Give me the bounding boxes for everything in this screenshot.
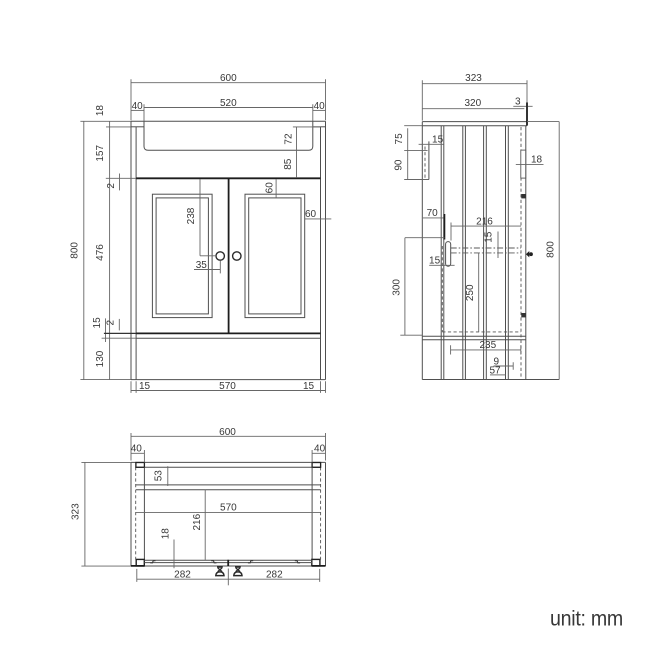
svg-text:2: 2 — [106, 183, 117, 189]
svg-text:250: 250 — [465, 284, 476, 301]
svg-text:53: 53 — [154, 470, 165, 482]
svg-text:323: 323 — [465, 73, 482, 84]
svg-text:235: 235 — [479, 340, 496, 351]
svg-text:35: 35 — [196, 260, 208, 271]
svg-text:600: 600 — [220, 73, 237, 84]
svg-text:130: 130 — [95, 350, 106, 367]
svg-text:800: 800 — [69, 242, 80, 259]
svg-text:216: 216 — [192, 513, 203, 530]
svg-text:40: 40 — [131, 443, 143, 454]
svg-text:40: 40 — [314, 101, 326, 112]
svg-text:238: 238 — [186, 207, 197, 224]
svg-text:282: 282 — [266, 570, 283, 581]
svg-text:3: 3 — [515, 97, 521, 108]
svg-text:85: 85 — [283, 158, 294, 170]
svg-text:72: 72 — [284, 133, 295, 145]
svg-text:60: 60 — [305, 209, 317, 220]
svg-text:476: 476 — [95, 244, 106, 261]
svg-text:70: 70 — [427, 208, 439, 219]
svg-text:15: 15 — [484, 231, 495, 243]
svg-text:60: 60 — [264, 182, 275, 194]
svg-text:157: 157 — [95, 145, 106, 162]
svg-text:90: 90 — [393, 159, 404, 171]
svg-text:15: 15 — [303, 381, 315, 392]
svg-text:320: 320 — [464, 98, 481, 109]
svg-text:40: 40 — [314, 443, 326, 454]
svg-text:570: 570 — [219, 381, 236, 392]
svg-text:300: 300 — [392, 279, 403, 296]
svg-text:800: 800 — [545, 241, 556, 258]
svg-text:282: 282 — [174, 570, 191, 581]
svg-text:520: 520 — [220, 98, 237, 109]
svg-text:18: 18 — [531, 155, 543, 166]
svg-text:18: 18 — [95, 105, 106, 117]
svg-text:15: 15 — [139, 381, 151, 392]
svg-text:2: 2 — [105, 319, 116, 325]
svg-text:15: 15 — [432, 134, 444, 145]
svg-text:323: 323 — [71, 503, 82, 520]
svg-text:15: 15 — [429, 255, 441, 266]
svg-text:75: 75 — [394, 133, 405, 145]
svg-text:18: 18 — [160, 528, 171, 540]
svg-text:40: 40 — [132, 101, 144, 112]
svg-text:57: 57 — [489, 366, 501, 377]
svg-text:unit: mm: unit: mm — [550, 608, 623, 631]
svg-text:600: 600 — [219, 427, 236, 438]
svg-text:216: 216 — [476, 216, 493, 227]
svg-text:15: 15 — [92, 317, 103, 329]
svg-text:570: 570 — [220, 503, 237, 514]
